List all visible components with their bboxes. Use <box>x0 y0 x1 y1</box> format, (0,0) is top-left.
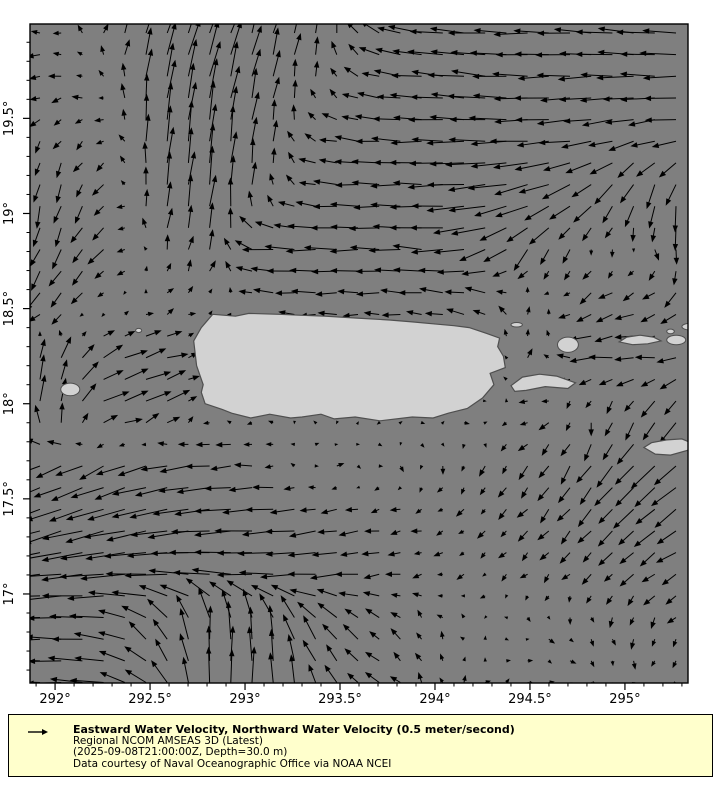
reference-arrow-icon <box>27 727 57 737</box>
x-tick-label: 292.5° <box>128 692 172 707</box>
velocity-map-figure: 292°292.5°293°293.5°294°294.5°295°19.5°1… <box>0 0 720 800</box>
legend-credit: Data courtesy of Naval Oceanographic Off… <box>73 759 515 771</box>
x-tick-label: 294° <box>419 692 450 707</box>
y-tick-label: 17.5° <box>2 481 17 516</box>
x-tick-label: 294.5° <box>508 692 552 707</box>
legend-text: Eastward Water Velocity, Northward Water… <box>73 724 515 770</box>
y-tick-label: 19° <box>2 202 17 225</box>
jost-van-dyke-island <box>667 329 675 334</box>
quiver-map-plot: 292°292.5°293°293.5°294°294.5°295°19.5°1… <box>0 0 720 712</box>
x-tick-label: 292° <box>39 692 70 707</box>
x-tick-label: 293° <box>229 692 260 707</box>
legend-box: Eastward Water Velocity, Northward Water… <box>8 714 713 777</box>
x-tick-label: 293.5° <box>318 692 362 707</box>
culebra-island <box>558 337 579 352</box>
x-tick-label: 295° <box>609 692 640 707</box>
y-tick-label: 17° <box>2 582 17 605</box>
puerto-rico-island <box>194 313 506 420</box>
y-tick-label: 18° <box>2 392 17 415</box>
y-tick-label: 19.5° <box>2 101 17 136</box>
tortola-island <box>682 323 699 330</box>
icacos-cays-island <box>511 322 522 327</box>
legend-title: Eastward Water Velocity, Northward Water… <box>73 724 515 736</box>
st-john-island <box>667 335 686 345</box>
mona-island <box>61 383 80 396</box>
y-tick-label: 18.5° <box>2 291 17 326</box>
desecheo-island <box>136 328 142 332</box>
